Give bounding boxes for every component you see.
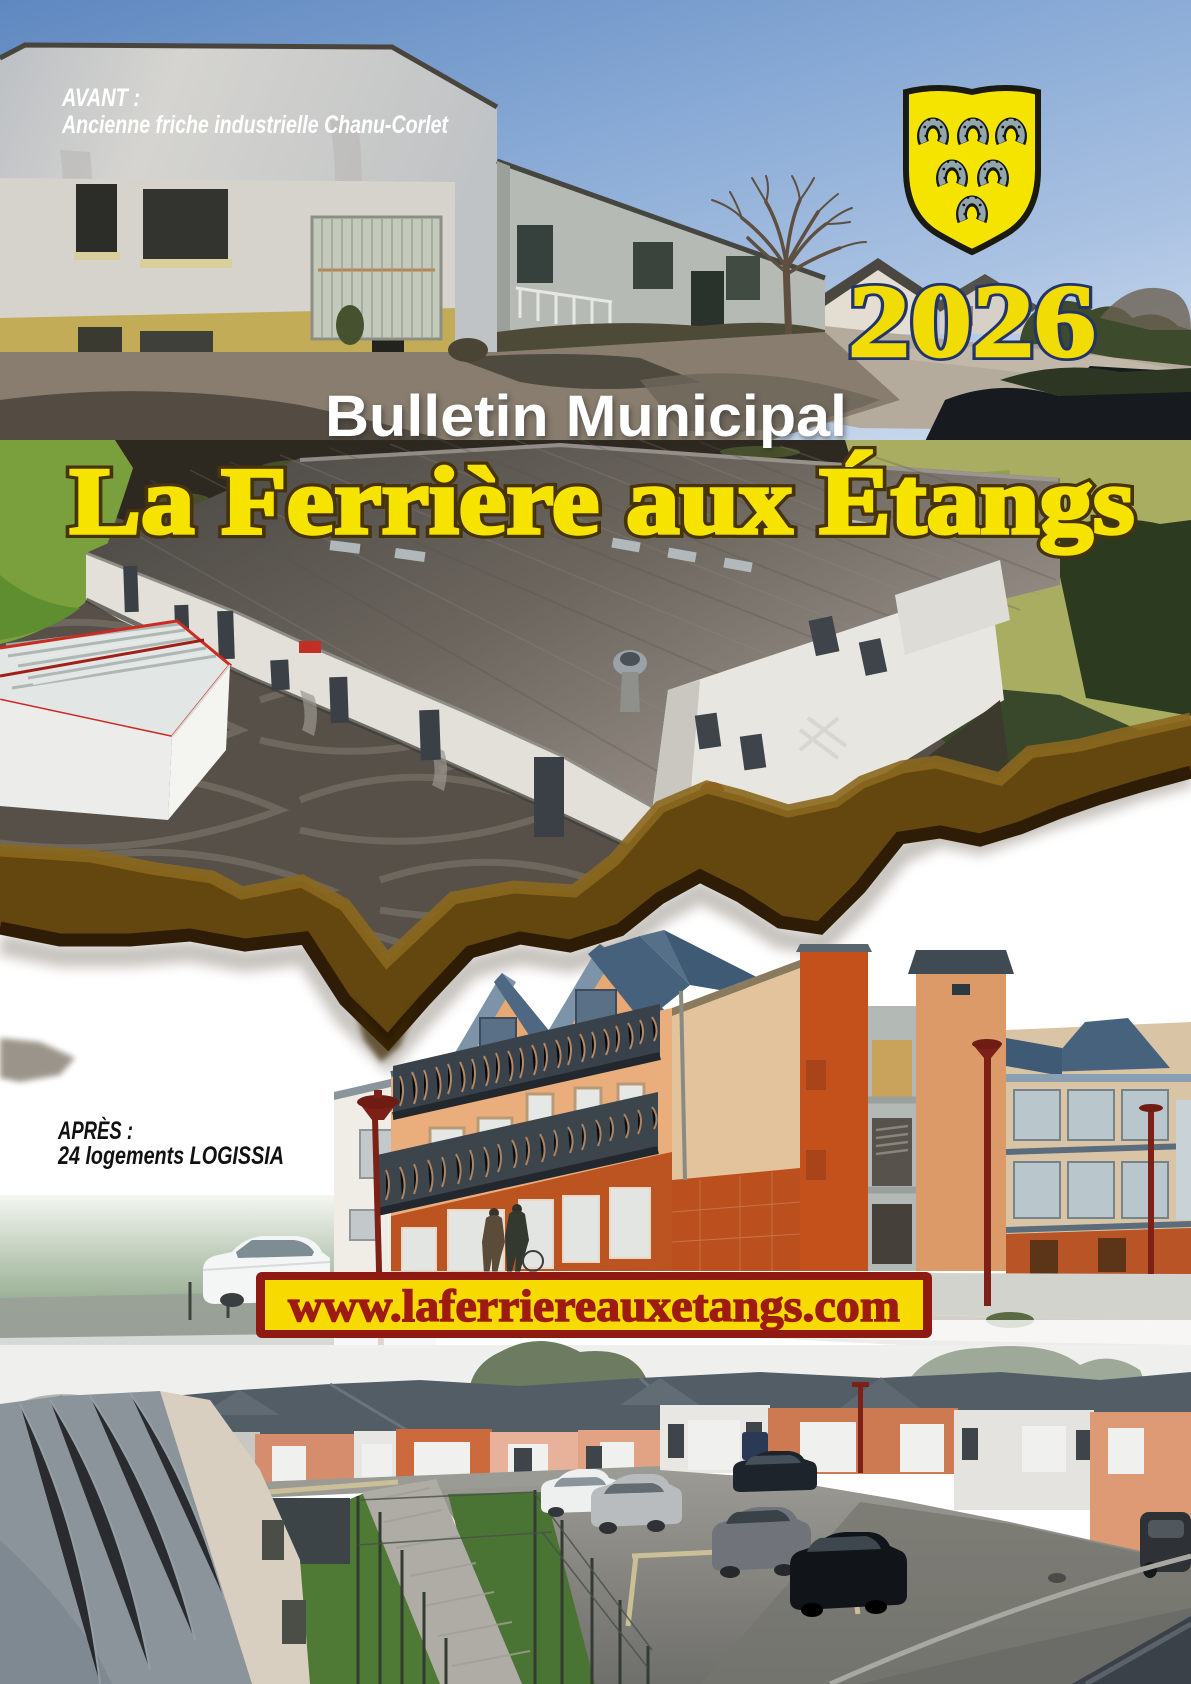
svg-text:APRÈS :: APRÈS : — [57, 1116, 133, 1145]
svg-text:Ancienne friche industrielle C: Ancienne friche industrielle Chanu-Corle… — [61, 111, 449, 139]
svg-text:AVANT :: AVANT : — [61, 84, 140, 112]
svg-text:2026: 2026 — [848, 264, 1096, 379]
svg-text:24 logements LOGISSIA: 24 logements LOGISSIA — [57, 1142, 284, 1170]
svg-text:La Ferrière aux Étangs: La Ferrière aux Étangs — [70, 448, 1135, 554]
svg-text:www.laferriereauxetangs.com: www.laferriereauxetangs.com — [288, 1280, 900, 1331]
svg-text:Bulletin Municipal: Bulletin Municipal — [325, 384, 847, 449]
